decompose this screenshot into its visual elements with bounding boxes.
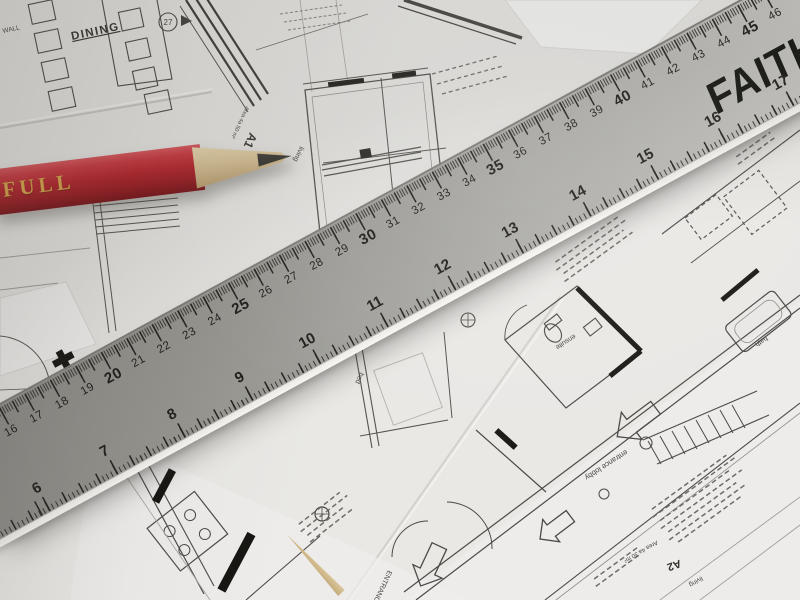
plan-dining-room xyxy=(28,0,268,114)
bed-room-lines xyxy=(355,332,452,448)
dimension-line xyxy=(256,14,368,50)
ruler-number: 6 xyxy=(29,479,44,498)
wall-solid xyxy=(328,78,364,87)
sink xyxy=(583,318,602,336)
door-swing xyxy=(392,521,428,557)
stair-lines xyxy=(94,198,180,234)
wall-solid xyxy=(722,270,758,300)
ruler-number: 7 xyxy=(97,442,112,461)
ruler-number: 8 xyxy=(164,405,179,424)
label-dining: DINING xyxy=(70,21,121,43)
pencil-brand-text: FAITHFULL xyxy=(0,169,76,213)
chair xyxy=(41,58,69,83)
ruler-number: 9 xyxy=(232,368,247,387)
label-bed: bed xyxy=(353,371,364,385)
wall-lines-heavy xyxy=(186,0,268,106)
chair xyxy=(48,87,76,112)
chair xyxy=(125,38,150,61)
label-wall: WALL xyxy=(2,24,21,35)
pencil-lead-tip xyxy=(255,133,294,183)
chair xyxy=(118,8,143,31)
wall-section-heavy xyxy=(404,0,522,38)
chair xyxy=(132,67,157,90)
note-text-rows xyxy=(432,56,508,94)
chair xyxy=(34,29,62,54)
wall-node xyxy=(359,148,371,159)
chair xyxy=(28,0,56,24)
photo-architectural-plans: DINING WALL 27 A1 Area 4a 50 m² living b… xyxy=(0,0,800,600)
door-swing xyxy=(505,305,527,340)
dining-table xyxy=(102,0,172,86)
wall-solid xyxy=(494,428,517,450)
bed-furniture xyxy=(374,353,443,425)
furniture-dashed xyxy=(685,195,732,240)
label-detail-marker: 27 xyxy=(164,18,173,27)
